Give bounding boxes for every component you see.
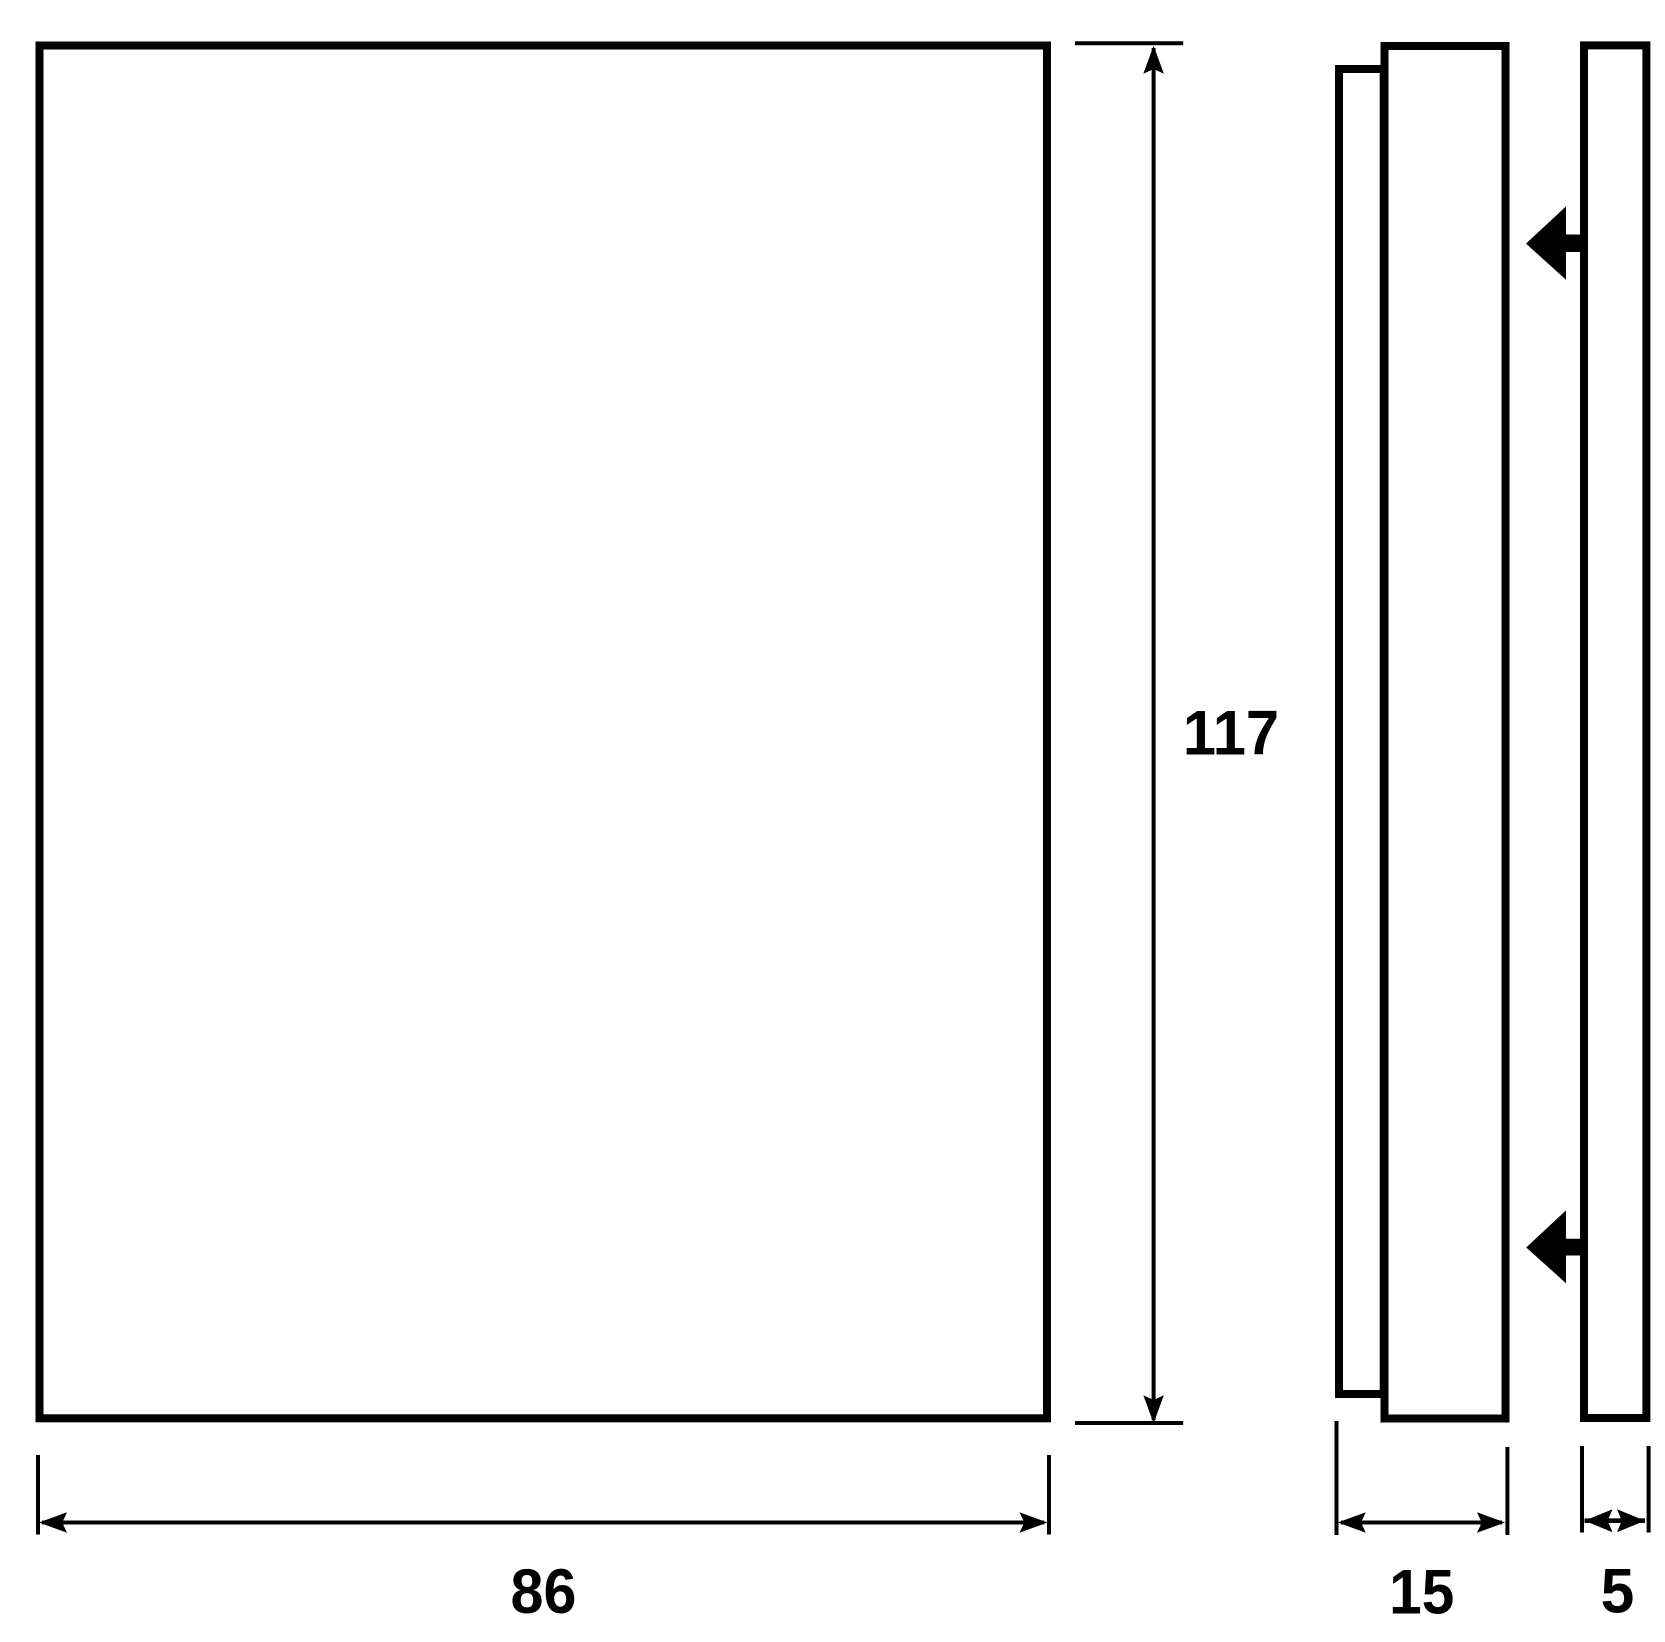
- svg-text:86: 86: [511, 1556, 577, 1626]
- svg-text:5: 5: [1601, 1556, 1635, 1626]
- svg-text:117: 117: [1183, 698, 1279, 769]
- svg-text:15: 15: [1389, 1557, 1454, 1627]
